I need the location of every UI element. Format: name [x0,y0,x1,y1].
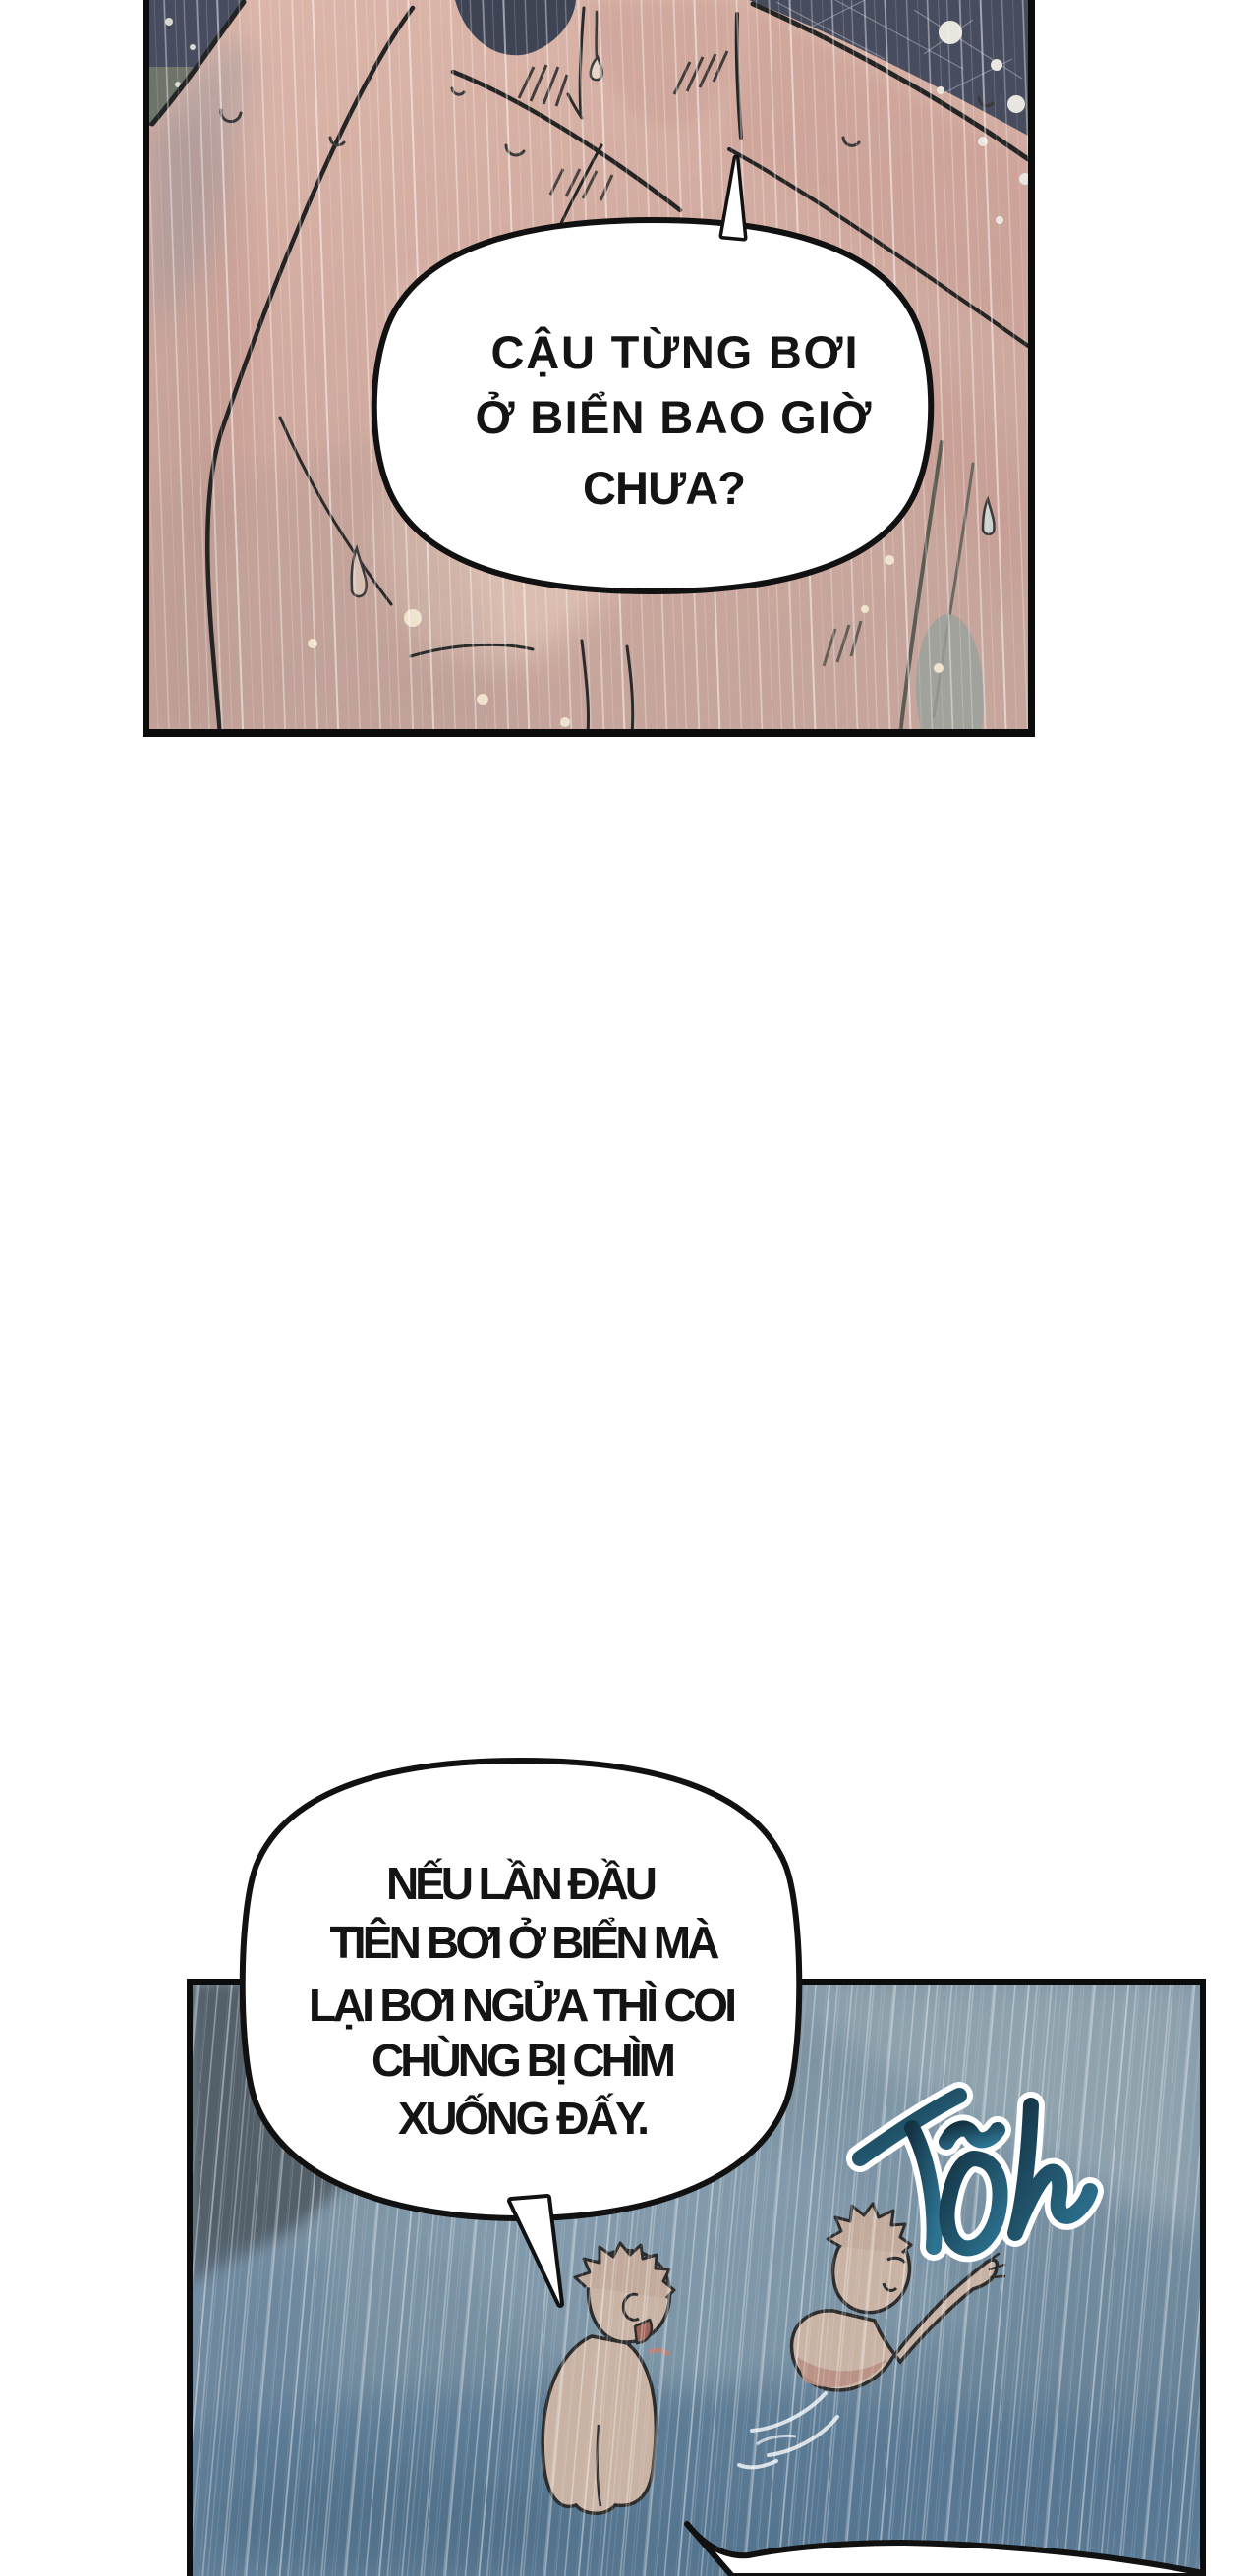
svg-text:Ở BIỂN BAO GIỜ: Ở BIỂN BAO GIỜ [476,391,873,443]
svg-text:CHÙNG BỊ CHÌM: CHÙNG BỊ CHÌM [372,2035,676,2086]
svg-text:CHƯA?: CHƯA? [583,462,746,514]
svg-text:NẾU LẦN ĐẦU: NẾU LẦN ĐẦU [386,1858,658,1909]
svg-text:LẠI BƠI NGỬA THÌ COI: LẠI BƠI NGỬA THÌ COI [309,1980,737,2031]
svg-text:TIÊN BƠI Ở BIỂN MÀ: TIÊN BƠI Ở BIỂN MÀ [330,1917,720,1968]
svg-text:XUỐNG ĐẤY.: XUỐNG ĐẤY. [398,2093,650,2144]
